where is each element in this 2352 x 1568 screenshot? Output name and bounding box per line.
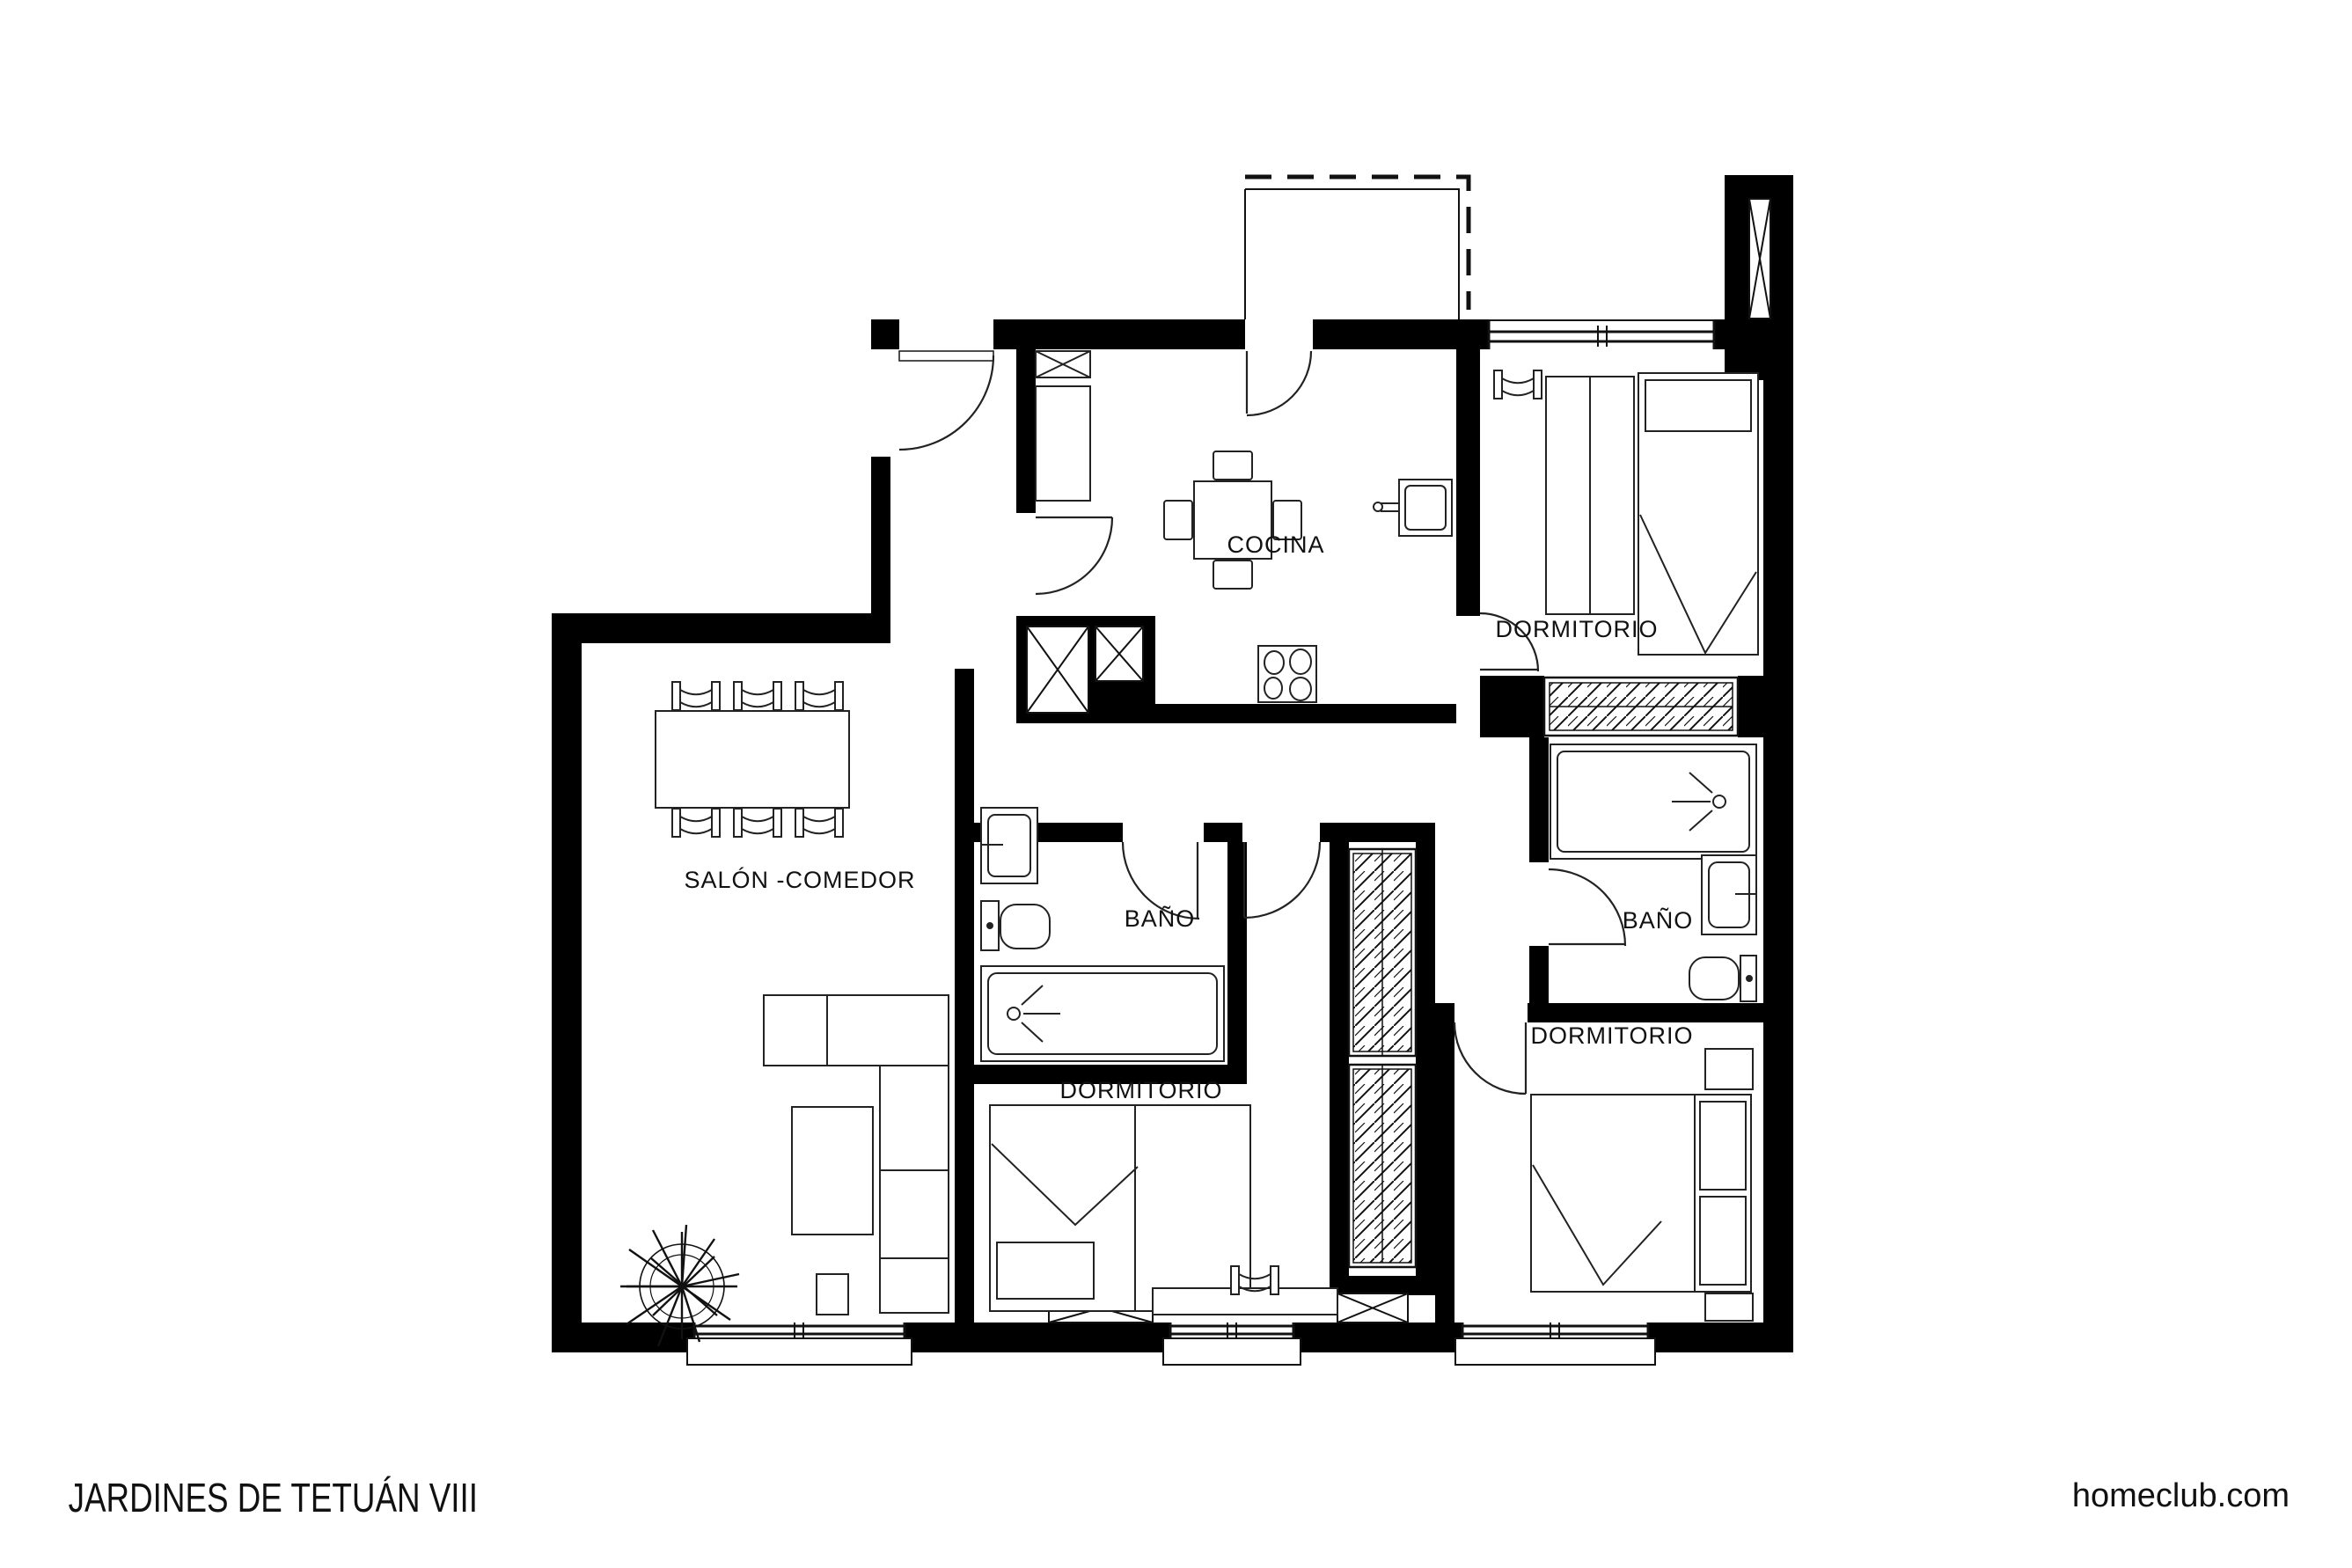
bath2-fixtures xyxy=(1550,744,1756,1001)
bath2-toilet xyxy=(1689,956,1756,1001)
wardrobe-strip-top-right xyxy=(1544,678,1738,736)
balcony xyxy=(1245,177,1469,319)
footer: JARDINES DE TETUÁN VIII homeclub.com xyxy=(69,1475,2290,1520)
room-label-bano-1: BAÑO xyxy=(1125,905,1196,932)
balcony-door xyxy=(1247,351,1311,415)
kitchen-left-units xyxy=(1036,351,1090,501)
dorm-top-bed xyxy=(1638,373,1758,655)
kitchen-table xyxy=(1164,451,1301,589)
dorm-center-door xyxy=(1244,842,1320,918)
dorm-top-furniture xyxy=(1494,370,1758,655)
salon-furniture xyxy=(620,682,949,1346)
room-label-bano-2: BAÑO xyxy=(1623,906,1694,934)
dorm-right-bed xyxy=(1531,1095,1751,1292)
shaft-vent-box xyxy=(1749,199,1770,319)
balcony-dashed-edge xyxy=(1245,177,1469,310)
bath2-door xyxy=(1549,869,1625,946)
wardrobe-column-upper xyxy=(1349,849,1416,1056)
room-label-dormitorio-top: DORMITORIO xyxy=(1496,616,1659,642)
wardrobe-column-lower xyxy=(1349,1065,1416,1267)
window-top-bedroom xyxy=(1489,320,1714,349)
kitchen-hob xyxy=(1258,646,1316,702)
room-label-dormitorio-center: DORMITORIO xyxy=(1060,1077,1223,1103)
floor-plan-svg: COCINA DORMITORIO SALÓN -COMEDOR BAÑO DO… xyxy=(0,0,2352,1568)
brand-logo: homeclub.com xyxy=(2072,1477,2290,1514)
dorm-center-furniture xyxy=(990,1105,1337,1315)
bath2-sink xyxy=(1702,855,1756,934)
nightstand-1 xyxy=(1705,1049,1753,1089)
coffee-table xyxy=(792,1107,873,1235)
window-salon xyxy=(687,1323,912,1365)
bath1-bathtub xyxy=(981,966,1224,1061)
plan-title: JARDINES DE TETUÁN VIII xyxy=(69,1475,478,1520)
dorm-top-wardrobe xyxy=(1546,377,1634,614)
bath2-shower xyxy=(1550,744,1756,859)
kitchen-door xyxy=(1036,517,1112,594)
dorm-center-desk xyxy=(1153,1288,1337,1315)
side-table xyxy=(817,1274,848,1315)
bath1-sink xyxy=(981,808,1037,883)
window-dorm-right xyxy=(1455,1323,1655,1365)
dorm-right-door xyxy=(1454,1022,1526,1094)
room-label-salon: SALÓN -COMEDOR xyxy=(684,866,915,893)
floor-plan-page: COCINA DORMITORIO SALÓN -COMEDOR BAÑO DO… xyxy=(0,0,2352,1568)
nightstand-2 xyxy=(1705,1293,1753,1321)
dorm-center-bed xyxy=(990,1105,1250,1311)
room-label-dormitorio-right: DORMITORIO xyxy=(1531,1022,1694,1049)
bath1-fixtures xyxy=(981,808,1224,1061)
bedroom-stool xyxy=(1494,370,1542,399)
window-dorm-center xyxy=(1163,1323,1301,1365)
bath1-toilet xyxy=(981,901,1050,950)
room-label-cocina: COCINA xyxy=(1227,531,1324,558)
entry-door xyxy=(899,351,993,450)
kitchen-sink xyxy=(1374,480,1452,536)
dorm-right-furniture xyxy=(1531,1049,1753,1321)
dining-table xyxy=(656,711,849,808)
